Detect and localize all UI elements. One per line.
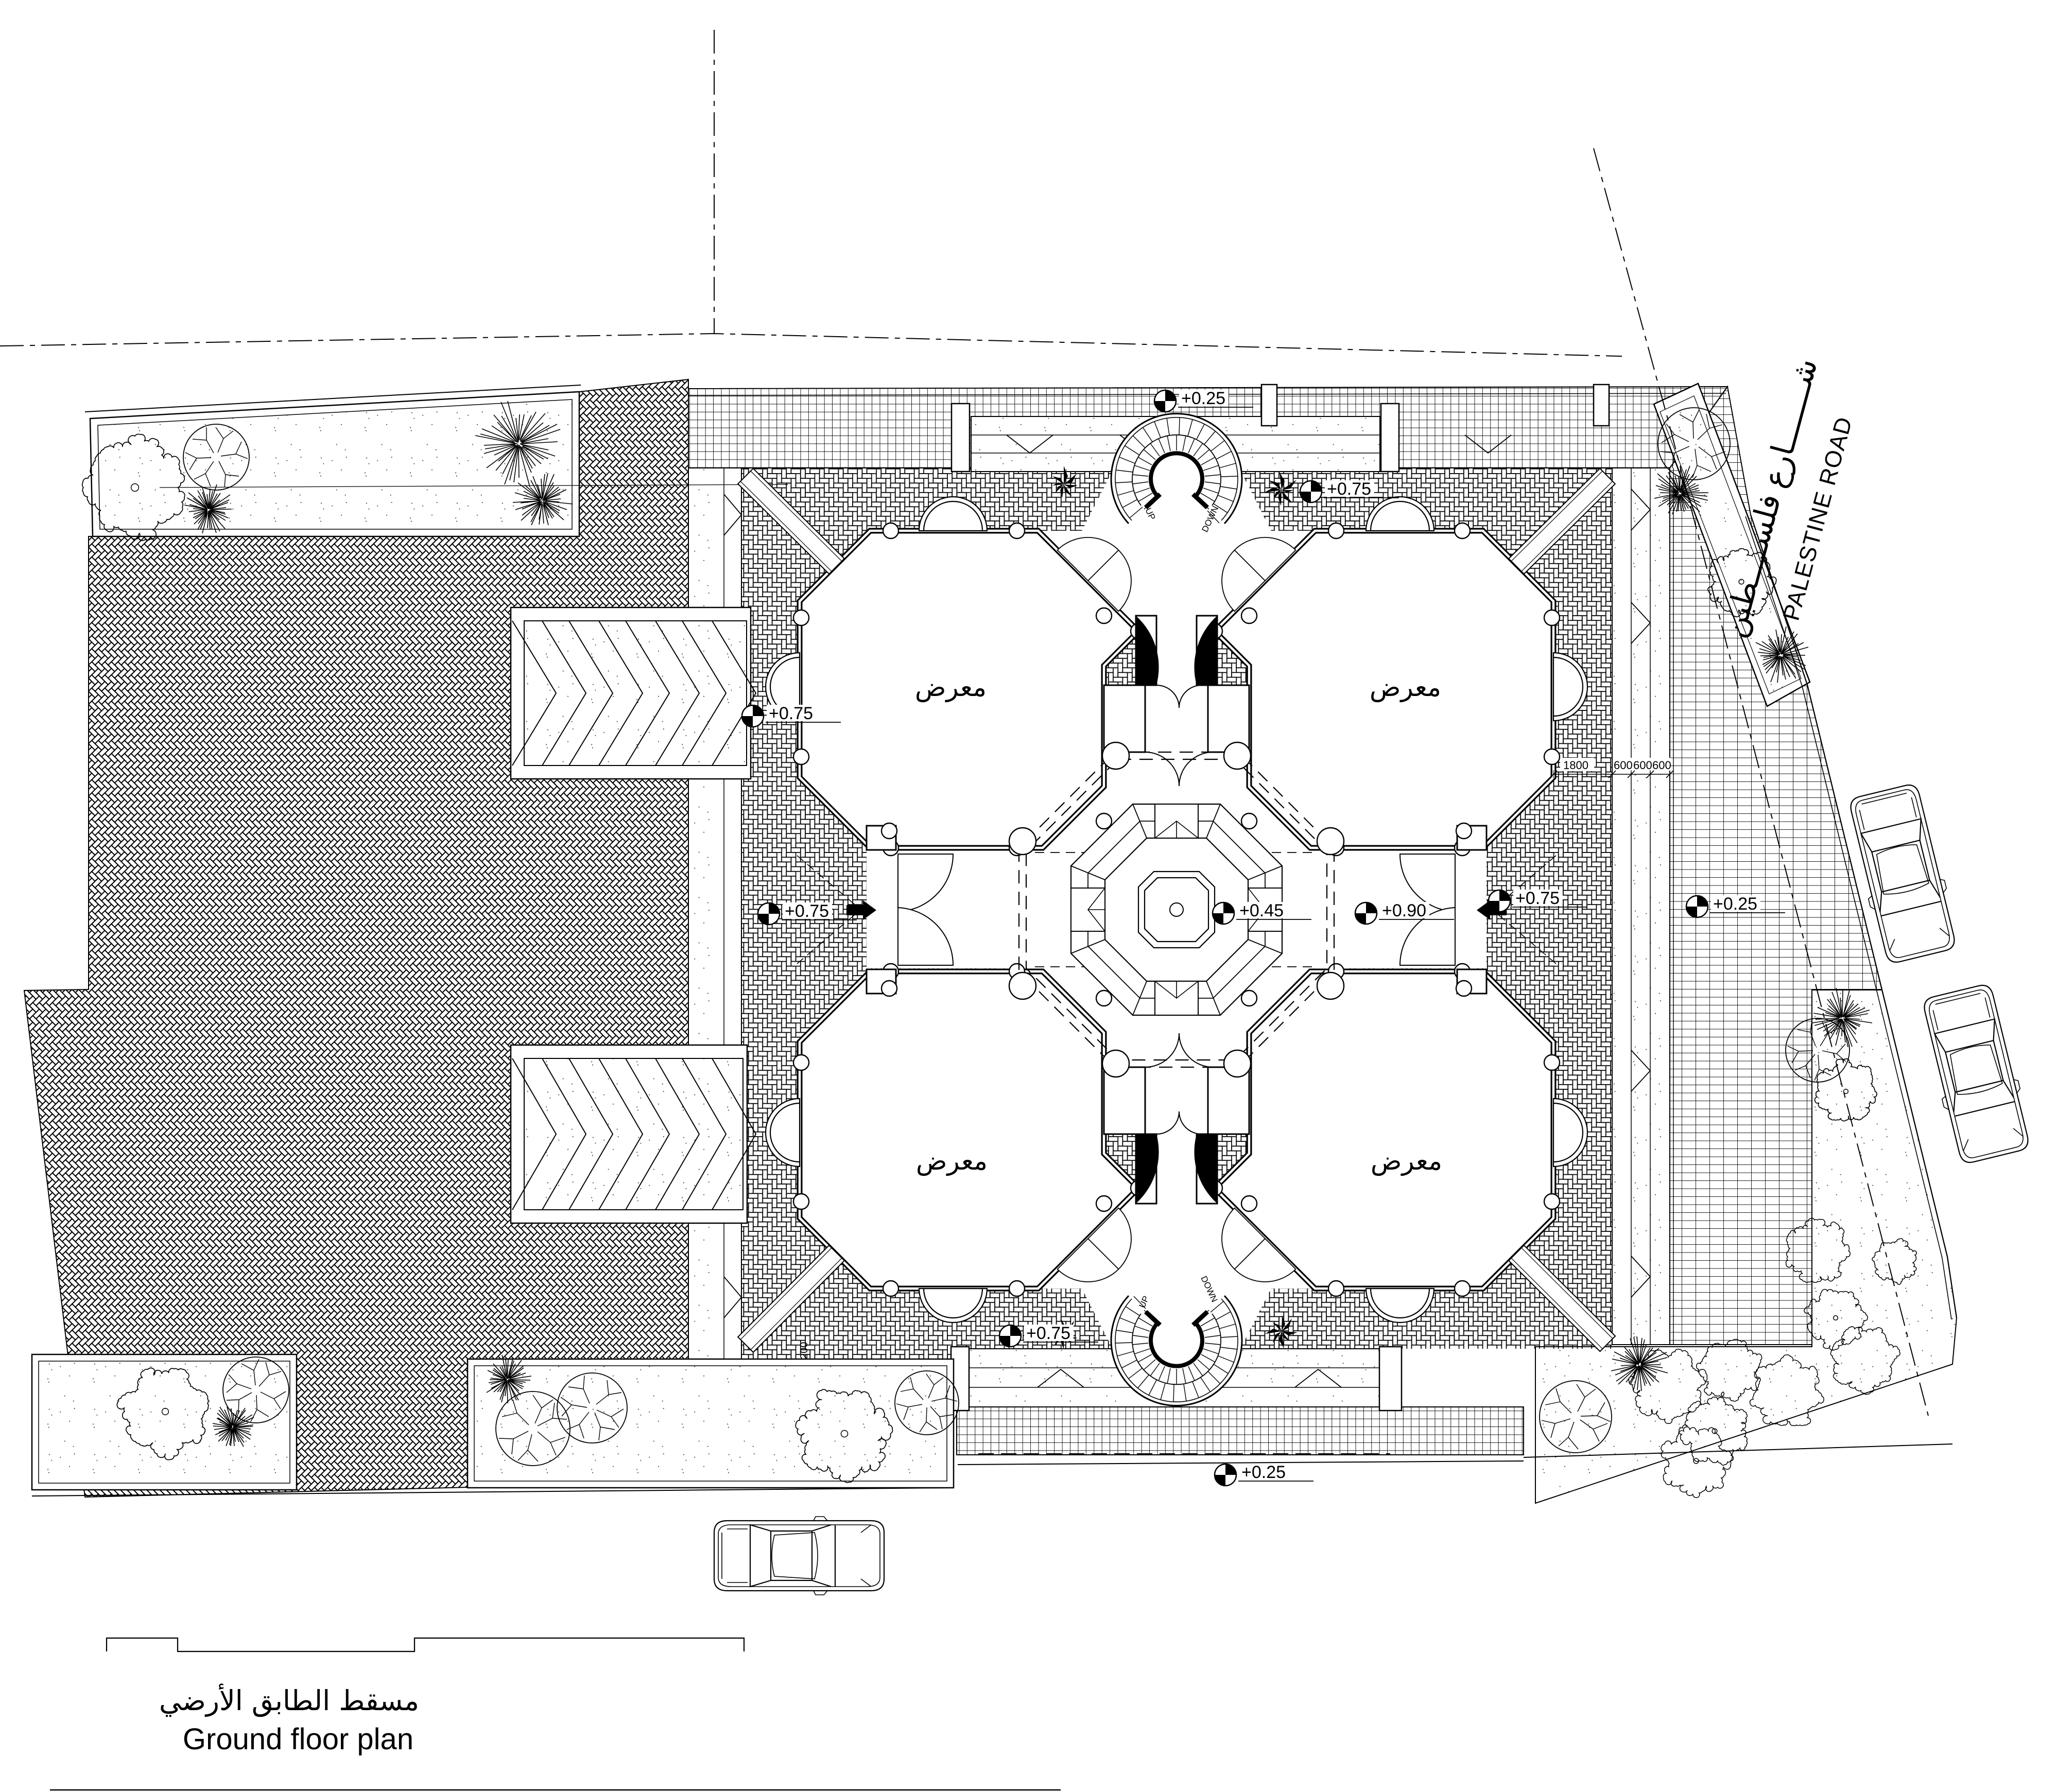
svg-text:+0.25: +0.25	[1181, 389, 1225, 408]
svg-text:+0.75: +0.75	[1026, 1324, 1070, 1343]
svg-text:200: 200	[799, 1342, 810, 1359]
svg-text:1800: 1800	[1563, 759, 1588, 772]
svg-text:600: 600	[1614, 759, 1633, 772]
svg-text:+0.45: +0.45	[1239, 901, 1284, 920]
svg-text:+0.75: +0.75	[769, 704, 813, 723]
svg-text:600: 600	[1652, 759, 1671, 772]
svg-text:+0.75: +0.75	[785, 901, 829, 921]
svg-text:+0.90: +0.90	[1382, 901, 1426, 920]
svg-text:600: 600	[1633, 759, 1652, 772]
svg-text:+0.75: +0.75	[1327, 479, 1371, 499]
svg-text:+0.75: +0.75	[1515, 889, 1560, 908]
svg-text:+0.25: +0.25	[1241, 1463, 1286, 1482]
svg-text:+0.25: +0.25	[1713, 894, 1757, 914]
svg-text:Ground floor plan: Ground floor plan	[183, 1723, 413, 1756]
